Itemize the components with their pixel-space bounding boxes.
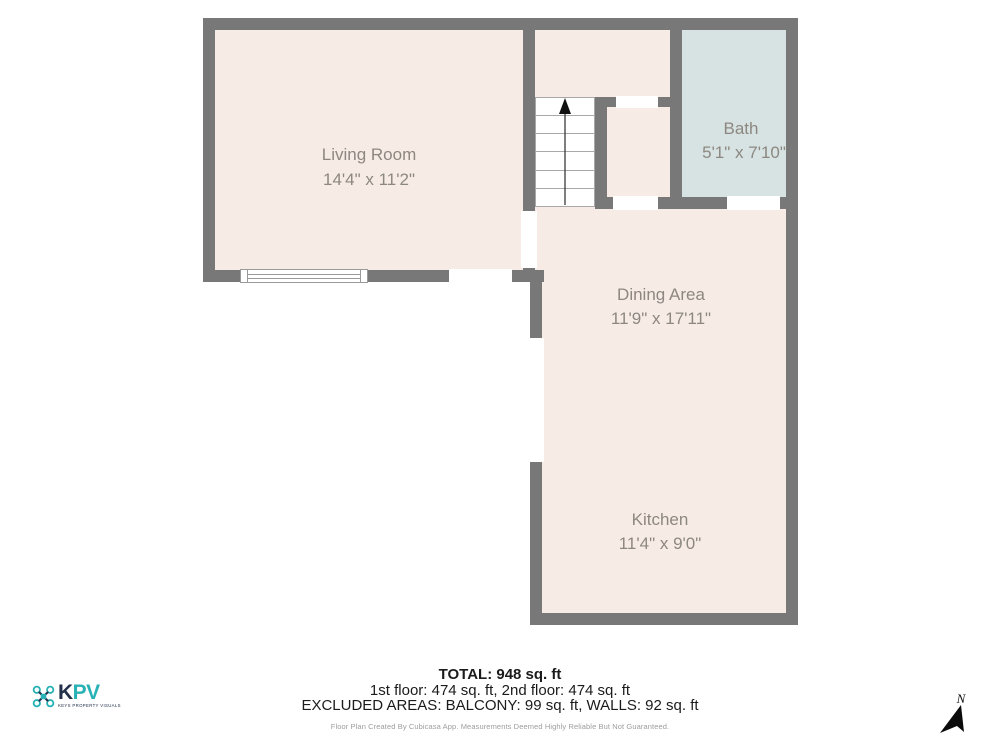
window (241, 270, 368, 283)
living-room-name: Living Room (322, 145, 417, 164)
total-area-text: TOTAL: 948 sq. ft (0, 667, 1000, 682)
disclaimer-text: Floor Plan Created By Cubicasa App. Meas… (0, 722, 1000, 731)
doorway-hall-closet (616, 96, 658, 108)
wall-right-exterior (786, 18, 798, 625)
brand-name: KPV (58, 684, 121, 702)
logo-text: KPV KEYS PROPERTY VISUALS (58, 684, 121, 708)
north-arrow: N (935, 686, 980, 744)
dining-area-name: Dining Area (617, 285, 705, 304)
brand-tagline: KEYS PROPERTY VISUALS (58, 703, 121, 708)
kitchen-dims: 11'4" x 9'0" (619, 534, 702, 553)
doorway-bath (727, 196, 780, 210)
opening-dining-left (528, 338, 544, 462)
wall-bath-left (670, 30, 682, 207)
wall-left-exterior (203, 18, 215, 282)
staircase (535, 98, 595, 207)
wall-kitchen-bottom (530, 613, 798, 625)
dining-area-dims: 11'9" x 17'11" (611, 309, 711, 328)
floor-plan-page: Living Room 14'4" x 11'2" Bath 5'1" x 7'… (0, 0, 1000, 750)
kitchen-name: Kitchen (632, 510, 689, 529)
brand-k: K (58, 681, 73, 704)
doorway-closet-dining (613, 196, 658, 210)
wall-top-exterior (203, 18, 798, 30)
bath-dims: 5'1" x 7'10" (702, 143, 786, 162)
north-arrow-shape (940, 705, 964, 733)
brand-pv: PV (73, 681, 100, 704)
kpv-logo: KPV KEYS PROPERTY VISUALS (32, 684, 121, 708)
excluded-areas-text: EXCLUDED AREAS: BALCONY: 99 sq. ft, WALL… (0, 698, 1000, 713)
floor-plan: Living Room 14'4" x 11'2" Bath 5'1" x 7'… (0, 0, 1000, 660)
bath-name: Bath (724, 119, 759, 138)
living-room-dims: 14'4" x 11'2" (323, 170, 415, 189)
drone-icon (32, 685, 55, 708)
area-summary: TOTAL: 948 sq. ft 1st floor: 474 sq. ft,… (0, 667, 1000, 731)
opening-living-bottom (449, 269, 512, 283)
north-label: N (956, 691, 967, 706)
bath-floor (682, 30, 786, 197)
floor-areas-text: 1st floor: 474 sq. ft, 2nd floor: 474 sq… (0, 683, 1000, 698)
doorway-living-dining (521, 211, 537, 268)
wall-stairs-right (595, 97, 607, 207)
